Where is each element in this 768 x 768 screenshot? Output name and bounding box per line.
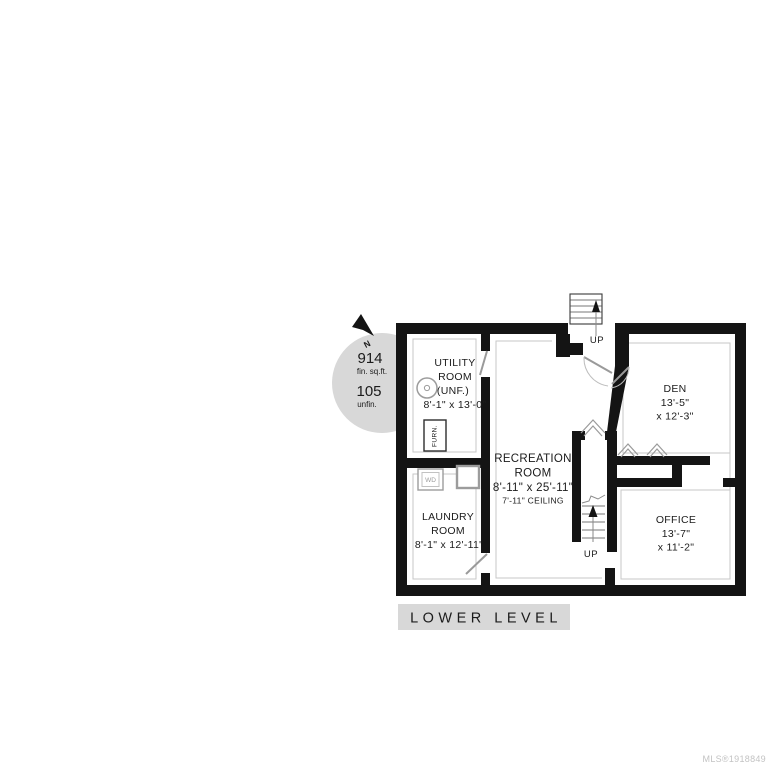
wall-right [735,323,746,596]
laundry-name-2: ROOM [431,525,465,537]
wall-laundry-stub [481,573,490,587]
recreation-ceiling-height: 7'-11" CEILING [502,496,564,506]
wall-entry-left-stub [570,343,583,355]
recreation-dimensions: 8'-11" x 25'-11" [493,482,573,494]
office-name: OFFICE [656,514,696,526]
recreation-name-1: RECREATION [494,453,572,465]
furnace-label: FURN. [432,425,439,447]
wall-top-left [396,323,568,334]
den-dimension-w: 13'-5" [661,397,690,409]
stairs-up-label: UP [584,549,598,560]
den-dimension-h: x 12'-3" [656,411,693,423]
wall-office-top-right [723,478,746,487]
wall-stair-left [572,431,581,542]
den-name: DEN [663,383,686,395]
wall-top-right [615,323,746,334]
laundry-dimensions: 8'-1" x 12'-11" [415,539,483,551]
wall-utility-top [481,334,490,351]
wall-bottom [396,585,746,596]
wall-den-closet [611,456,710,465]
finished-area-unit: fin. sq.ft. [357,367,387,376]
level-title: LOWER LEVEL [410,611,562,627]
drain-center-icon [424,385,429,390]
wall-entry-left-jamb [556,334,570,357]
office-dimension-h: x 11'-2" [658,542,695,554]
utility-dimensions: 8'-1" x 13'-0" [424,399,487,411]
floorplan-canvas: N 914 fin. sq.ft. 105 unfin. [0,0,768,768]
office-dimension-w: 13'-7" [662,528,691,540]
level-title-bar: LOWER LEVEL [398,604,570,630]
entry-up-label: UP [590,335,604,346]
floorplan-page: N 914 fin. sq.ft. 105 unfin. [0,0,768,768]
utility-name-2: ROOM [438,371,472,383]
wall-entry-right-jamb [615,334,629,366]
mls-watermark: MLS®1918849 [703,754,766,764]
unfinished-area-unit: unfin. [357,400,377,409]
office-label: OFFICE 13'-7" x 11'-2" [656,514,696,554]
utility-name-3: (UNF.) [437,385,469,397]
finished-area-value: 914 [357,350,382,367]
wall-stair-right-lower [605,568,615,585]
wall-left [396,323,407,596]
unfinished-area-value: 105 [356,383,381,400]
laundry-tub-icon [457,466,479,488]
laundry-name-1: LAUNDRY [422,511,474,523]
wall-stair-right [607,431,617,552]
washer-dryer-label: WD [425,477,436,484]
wall-utility-mid [481,377,490,458]
north-arrow-icon [352,314,374,336]
utility-name-1: UTILITY [434,357,475,369]
wall-office-top-left [610,478,682,487]
recreation-name-2: ROOM [515,468,552,480]
